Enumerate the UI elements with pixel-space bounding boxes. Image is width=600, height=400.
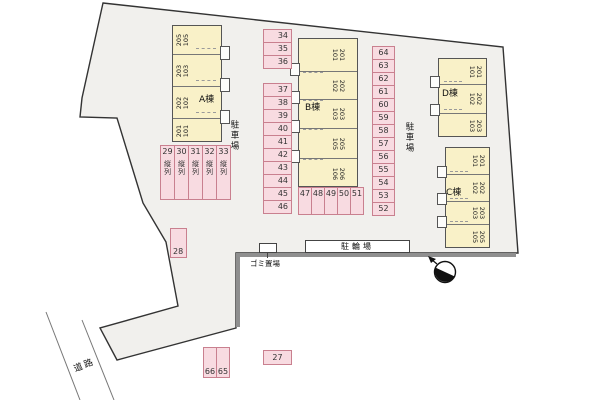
building-b-label: B棟 [305,100,320,113]
stair-dashes [450,171,468,172]
parking-spot-44: 44 [263,174,292,188]
stair-dashes [196,80,216,81]
parking-spot-30: 30 縦列 [174,145,189,200]
bicycle-parking: 駐輪場 [305,240,410,253]
stair-dashes [303,129,323,130]
unit-number: 206106 [331,164,345,184]
parking-spot-36: 36 [263,55,292,69]
parking-spot-60: 60 [372,98,395,112]
parking-spot-28: 28 [170,228,187,258]
parking-spot-48: 48 [311,187,325,215]
parking-spot-52: 52 [372,202,395,216]
parking-spot-63: 63 [372,59,395,73]
stair-dashes [196,48,216,49]
unit-number: 205105 [331,134,345,154]
stair-dashes [444,81,462,82]
stair-dashes [303,72,323,73]
unit-c-205: 205105 [446,224,489,249]
stair-dashes [444,109,462,110]
stair-dashes [196,112,216,113]
unit-number: 202102 [468,89,482,109]
parking-spot-64: 64 [372,46,395,60]
entry-notch [220,78,230,92]
tandem-label: 縦列 [177,160,187,176]
parking-spot-53: 53 [372,189,395,203]
entry-notch [220,46,230,60]
tandem-label: 縦列 [191,160,201,176]
parking-spot-29: 29 縦列 [160,145,175,200]
parking-spot-55: 55 [372,163,395,177]
parking-lot-label-west: 駐車場 [228,120,240,152]
parking-spot-27: 27 [263,350,292,365]
parking-spot-46: 46 [263,200,292,214]
parking-spot-39: 39 [263,109,292,123]
unit-b-206: 206106 [299,158,357,188]
unit-number: 203103 [471,203,485,223]
north-arrow-icon [427,254,463,290]
unit-b-202: 202102 [299,71,357,99]
unit-number: 201101 [471,151,485,171]
parking-spot-42: 42 [263,148,292,162]
stair-dashes [303,159,323,160]
tandem-label: 縦列 [219,160,229,176]
parking-spot-33: 33 縦列 [216,145,231,200]
garbage-area-box [259,243,277,253]
parking-spot-43: 43 [263,161,292,175]
parking-spot-35: 35 [263,42,292,56]
parking-spot-58: 58 [372,124,395,138]
unit-b-201: 201101 [299,39,357,71]
entry-notch [430,76,440,88]
parking-spot-50: 50 [337,187,351,215]
parking-spot-57: 57 [372,137,395,151]
building-a: 205105 203103 202102 201101 [172,25,222,142]
site-map: 205105 203103 202102 201101 A棟 201101 20… [0,0,600,400]
building-a-label: A棟 [199,92,214,105]
parking-spot-65: 65 [216,347,230,378]
parking-spot-66: 66 [203,347,217,378]
building-c-label: C棟 [446,185,461,198]
parking-lot-label-east: 駐車場 [403,122,415,154]
unit-number: 202102 [176,93,190,113]
parking-spot-32: 32 縦列 [202,145,217,200]
unit-number: 205105 [176,30,190,50]
parking-spot-45: 45 [263,187,292,201]
unit-number: 202102 [471,178,485,198]
unit-a-203: 203103 [173,54,221,86]
road-edge-line [46,312,80,400]
unit-number: 201101 [468,62,482,82]
unit-a-205: 205105 [173,26,221,54]
unit-b-205: 205105 [299,128,357,158]
stair-dashes [450,198,468,199]
unit-number: 201101 [331,45,345,65]
parking-spot-56: 56 [372,150,395,164]
entry-notch [437,166,447,178]
entry-notch [437,216,447,228]
unit-number: 205105 [471,227,485,247]
garbage-area-label: ゴミ置場 [240,258,290,269]
parking-spot-34: 34 [263,29,292,43]
parking-spot-59: 59 [372,111,395,125]
tandem-label: 縦列 [205,160,215,176]
unit-number: 203103 [331,104,345,124]
stair-dashes [450,221,468,222]
tandem-label: 縦列 [163,160,173,176]
entry-notch [430,104,440,116]
parking-spot-38: 38 [263,96,292,110]
parking-spot-54: 54 [372,176,395,190]
parking-spot-51: 51 [350,187,364,215]
parking-spot-37: 37 [263,83,292,97]
parking-spot-31: 31 縦列 [188,145,203,200]
unit-number: 202102 [331,76,345,96]
parking-spot-49: 49 [324,187,338,215]
stair-dashes [303,100,323,101]
parking-spot-41: 41 [263,135,292,149]
building-d-label: D棟 [442,86,458,99]
parking-spot-62: 62 [372,72,395,86]
unit-d-203: 203103 [439,113,486,138]
parking-spot-61: 61 [372,85,395,99]
parking-spot-40: 40 [263,122,292,136]
unit-number: 203103 [176,61,190,81]
unit-a-201: 201101 [173,118,221,143]
unit-number: 201101 [176,121,190,141]
entry-notch [437,193,447,205]
unit-number: 203103 [468,116,482,136]
parking-spot-47: 47 [298,187,312,215]
